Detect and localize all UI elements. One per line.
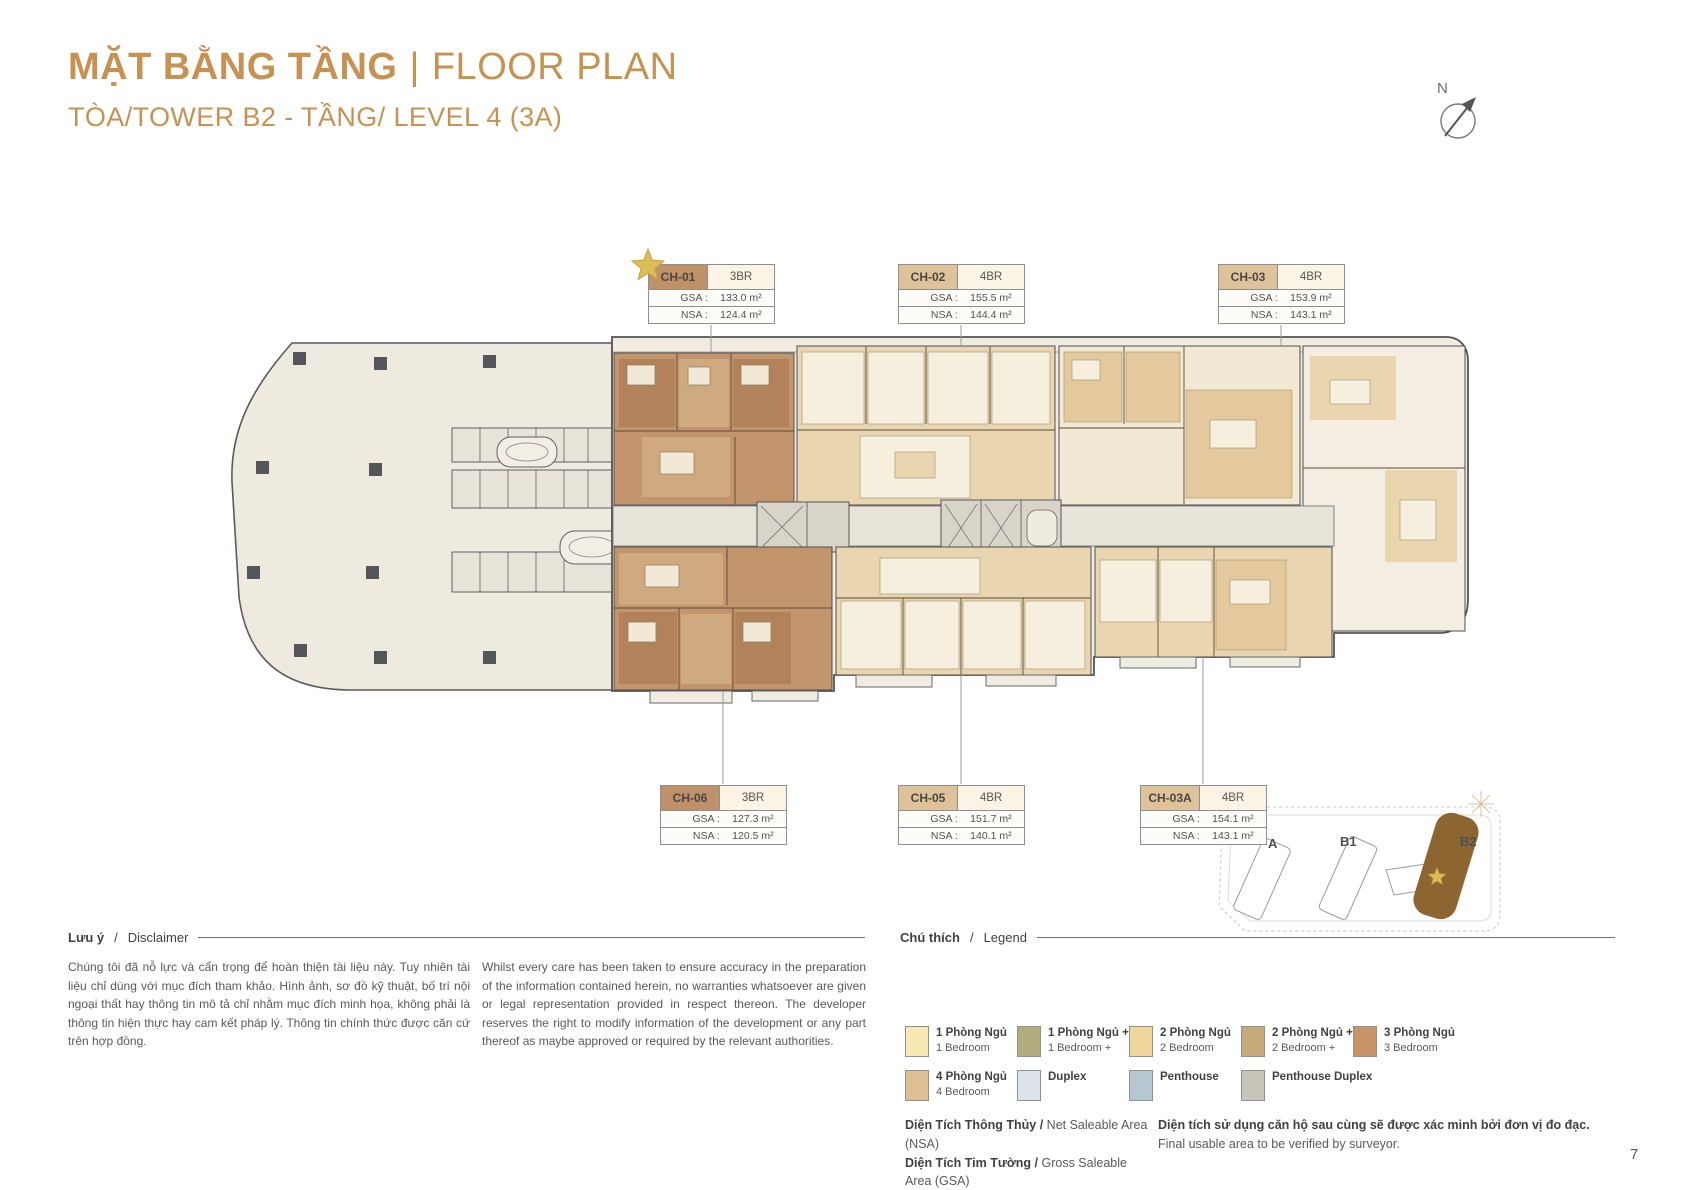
- nsa-value: 144.4 m²: [958, 309, 1024, 321]
- legend-label-vi: 2 Phòng Ngủ +: [1272, 1027, 1353, 1039]
- starburst-decoration: [1468, 791, 1494, 817]
- compass-icon: [1441, 97, 1476, 138]
- legend-label-en: 2 Bedroom +: [1272, 1042, 1353, 1054]
- legend-item-penthouse-duplex: Penthouse Duplex: [1241, 1070, 1372, 1101]
- legend-label-en: 4 Bedroom: [936, 1086, 1007, 1098]
- legend-label-vi: 1 Phòng Ngủ: [936, 1027, 1007, 1039]
- page-header: MẶT BẰNG TẦNG|FLOOR PLAN TÒA/TOWER B2 - …: [68, 46, 678, 133]
- gsa-label: GSA :: [1219, 292, 1278, 304]
- legend-label-vi: 3 Phòng Ngủ: [1384, 1027, 1455, 1039]
- gsa-label: GSA :: [899, 813, 958, 825]
- legend-swatch-2br: [1129, 1026, 1153, 1057]
- gsa-value: 154.1 m²: [1200, 813, 1266, 825]
- legend-label-vi: 4 Phòng Ngủ: [936, 1071, 1007, 1083]
- nsa-label: NSA :: [899, 830, 958, 842]
- gsa-value: 155.5 m²: [958, 292, 1024, 304]
- legend-swatch-3br: [1353, 1026, 1377, 1057]
- legend-swatch-1br-plus: [1017, 1026, 1041, 1057]
- unit-id: CH-05: [899, 786, 957, 810]
- unit-type: 3BR: [719, 786, 786, 810]
- nsa-label: NSA :: [649, 309, 708, 321]
- unit-type: 3BR: [707, 265, 774, 289]
- legend-label-en: 1 Bedroom +: [1048, 1042, 1129, 1054]
- tower-slab: [612, 337, 1468, 703]
- legend-item-4br: 4 Phòng Ngủ4 Bedroom: [905, 1070, 1007, 1101]
- legend-item-1br: 1 Phòng Ngủ1 Bedroom: [905, 1026, 1007, 1057]
- survey-note-en: Final usable area to be verified by surv…: [1158, 1135, 1618, 1154]
- unit-label-ch-02: CH-02 4BR GSA :155.5 m² NSA :144.4 m²: [898, 264, 1025, 324]
- page-subtitle: TÒA/TOWER B2 - TẦNG/ LEVEL 4 (3A): [68, 102, 678, 133]
- survey-note: Diện tích sử dụng căn hộ sau cùng sẽ đượ…: [1158, 1116, 1618, 1154]
- unit-region-ch-01: [614, 353, 794, 505]
- legend-item-2br: 2 Phòng Ngủ2 Bedroom: [1129, 1026, 1231, 1057]
- heading-rule: [198, 937, 865, 938]
- survey-note-vi: Diện tích sử dụng căn hộ sau cùng sẽ đượ…: [1158, 1116, 1618, 1135]
- nsa-label: NSA :: [1141, 830, 1200, 842]
- legend-swatch-2br-plus: [1241, 1026, 1265, 1057]
- title-separator: |: [409, 46, 419, 88]
- unit-region-ch-03a: [1095, 547, 1332, 657]
- unit-label-ch-05: CH-05 4BR GSA :151.7 m² NSA :140.1 m²: [898, 785, 1025, 845]
- legend-swatch-1br: [905, 1026, 929, 1057]
- map-label-tower-a: A: [1268, 836, 1277, 851]
- disclaimer-heading-en: Disclaimer: [128, 930, 189, 945]
- gsa-definition-vi: Diện Tích Tim Tường /: [905, 1156, 1038, 1170]
- unit-region-ch-03: [1059, 346, 1300, 505]
- nsa-label: NSA :: [899, 309, 958, 321]
- legend-label-en: 3 Bedroom: [1384, 1042, 1455, 1054]
- legend-heading-vi: Chú thích: [900, 930, 960, 945]
- legend-label-vi: Penthouse Duplex: [1272, 1071, 1372, 1083]
- gsa-value: 153.9 m²: [1278, 292, 1344, 304]
- unit-type: 4BR: [957, 265, 1024, 289]
- legend-swatch-4br: [905, 1070, 929, 1101]
- legend-label-vi: 2 Phòng Ngủ: [1160, 1027, 1231, 1039]
- disclaimer-text-en: Whilst every care has been taken to ensu…: [482, 958, 866, 1051]
- floor-plan-page: MẶT BẰNG TẦNG|FLOOR PLAN TÒA/TOWER B2 - …: [0, 0, 1683, 1190]
- unit-region-ch-05: [836, 547, 1091, 675]
- heading-rule: [1037, 937, 1615, 938]
- legend-item-duplex: Duplex: [1017, 1070, 1086, 1101]
- nsa-value: 124.4 m²: [708, 309, 774, 321]
- legend-swatch-penthouse-duplex: [1241, 1070, 1265, 1101]
- nsa-definition-vi: Diện Tích Thông Thủy /: [905, 1118, 1043, 1132]
- unit-region-ch-02: [797, 346, 1055, 505]
- page-title-vi: MẶT BẰNG TẦNG: [68, 46, 397, 88]
- unit-id: CH-03: [1219, 265, 1277, 289]
- podium-wing: [232, 343, 624, 690]
- page-title-en: FLOOR PLAN: [432, 46, 678, 88]
- legend-label-vi: Duplex: [1048, 1071, 1086, 1083]
- disclaimer-heading-sep: /: [114, 930, 118, 945]
- gsa-label: GSA :: [661, 813, 720, 825]
- legend-heading-sep: /: [970, 930, 974, 945]
- legend-item-penthouse: Penthouse: [1129, 1070, 1219, 1101]
- legend-swatch-duplex: [1017, 1070, 1041, 1101]
- legend-item-2br-plus: 2 Phòng Ngủ +2 Bedroom +: [1241, 1026, 1353, 1057]
- gsa-label: GSA :: [1141, 813, 1200, 825]
- gsa-value: 133.0 m²: [708, 292, 774, 304]
- unit-label-ch-01: CH-01 3BR GSA :133.0 m² NSA :124.4 m²: [648, 264, 775, 324]
- page-number: 7: [1630, 1146, 1638, 1163]
- legend-label-vi: 1 Phòng Ngủ +: [1048, 1027, 1129, 1039]
- unit-type: 4BR: [957, 786, 1024, 810]
- gsa-value: 127.3 m²: [720, 813, 786, 825]
- unit-label-ch-03: CH-03 4BR GSA :153.9 m² NSA :143.1 m²: [1218, 264, 1345, 324]
- legend-heading: Chú thích / Legend: [900, 930, 1615, 945]
- legend-label-vi: Penthouse: [1160, 1071, 1219, 1083]
- nsa-value: 120.5 m²: [720, 830, 786, 842]
- nsa-label: NSA :: [1219, 309, 1278, 321]
- unit-id: CH-06: [661, 786, 719, 810]
- legend-item-1br-plus: 1 Phòng Ngủ +1 Bedroom +: [1017, 1026, 1129, 1057]
- gsa-label: GSA :: [649, 292, 708, 304]
- legend-label-en: 1 Bedroom: [936, 1042, 1007, 1054]
- area-definitions: Diện Tích Thông Thủy / Net Saleable Area…: [905, 1116, 1155, 1190]
- legend-heading-en: Legend: [984, 930, 1027, 945]
- legend-item-3br: 3 Phòng Ngủ3 Bedroom: [1353, 1026, 1455, 1057]
- map-label-tower-b2: B2: [1460, 834, 1477, 849]
- unit-type: 4BR: [1277, 265, 1344, 289]
- unit-label-ch-03a: CH-03A 4BR GSA :154.1 m² NSA :143.1 m²: [1140, 785, 1267, 845]
- featured-star-icon: [628, 246, 668, 286]
- nsa-value: 143.1 m²: [1200, 830, 1266, 842]
- gsa-label: GSA :: [899, 292, 958, 304]
- map-label-tower-b1: B1: [1340, 834, 1357, 849]
- legend-label-en: 2 Bedroom: [1160, 1042, 1231, 1054]
- nsa-label: NSA :: [661, 830, 720, 842]
- unit-id: CH-02: [899, 265, 957, 289]
- unit-label-ch-06: CH-06 3BR GSA :127.3 m² NSA :120.5 m²: [660, 785, 787, 845]
- disclaimer-heading: Lưu ý / Disclaimer: [68, 930, 865, 945]
- nsa-value: 140.1 m²: [958, 830, 1024, 842]
- gsa-value: 151.7 m²: [958, 813, 1024, 825]
- unit-region-ch-06: [614, 547, 832, 690]
- disclaimer-text-vi: Chúng tôi đã nỗ lực và cẩn trọng để hoàn…: [68, 958, 470, 1051]
- unit-id: CH-03A: [1141, 786, 1199, 810]
- compass-north-label: N: [1437, 80, 1448, 97]
- nsa-value: 143.1 m²: [1278, 309, 1344, 321]
- legend-swatch-penthouse: [1129, 1070, 1153, 1101]
- disclaimer-heading-vi: Lưu ý: [68, 930, 104, 945]
- unit-type: 4BR: [1199, 786, 1266, 810]
- page-title: MẶT BẰNG TẦNG|FLOOR PLAN: [68, 46, 678, 89]
